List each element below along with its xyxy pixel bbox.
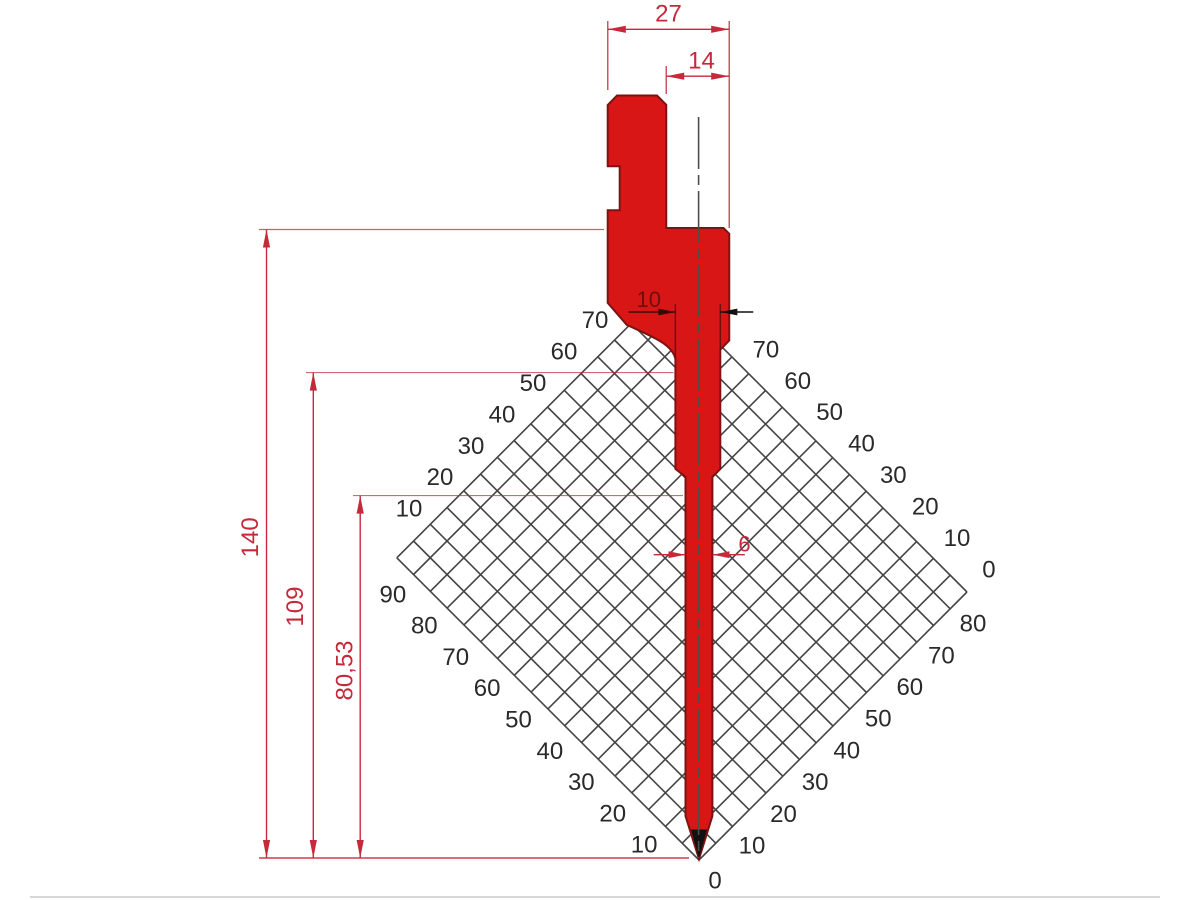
svg-text:10: 10 — [944, 525, 971, 552]
svg-text:0: 0 — [982, 556, 995, 583]
svg-text:40: 40 — [537, 738, 564, 765]
svg-text:0: 0 — [708, 868, 721, 895]
svg-text:30: 30 — [880, 462, 907, 489]
svg-text:30: 30 — [458, 433, 485, 460]
svg-text:50: 50 — [505, 707, 532, 734]
svg-text:10: 10 — [637, 287, 661, 312]
svg-text:10: 10 — [396, 496, 423, 523]
svg-text:70: 70 — [753, 336, 780, 363]
svg-text:70: 70 — [928, 642, 955, 669]
svg-text:27: 27 — [655, 1, 682, 28]
svg-text:80: 80 — [960, 611, 987, 638]
svg-text:20: 20 — [912, 494, 939, 521]
svg-text:60: 60 — [896, 674, 923, 701]
svg-text:70: 70 — [582, 307, 609, 334]
svg-text:140: 140 — [237, 517, 264, 557]
svg-text:90: 90 — [380, 581, 407, 608]
svg-text:80: 80 — [411, 613, 438, 640]
svg-text:6: 6 — [738, 532, 750, 557]
svg-text:30: 30 — [802, 769, 829, 796]
svg-text:20: 20 — [599, 800, 626, 827]
svg-text:40: 40 — [848, 431, 875, 458]
svg-text:50: 50 — [816, 399, 843, 426]
svg-text:30: 30 — [568, 769, 595, 796]
svg-text:60: 60 — [784, 368, 811, 395]
svg-text:10: 10 — [739, 833, 766, 860]
svg-text:40: 40 — [833, 737, 860, 764]
svg-text:109: 109 — [282, 587, 309, 627]
svg-text:20: 20 — [427, 464, 454, 491]
svg-text:50: 50 — [520, 370, 547, 397]
svg-text:10: 10 — [631, 832, 658, 859]
svg-text:60: 60 — [474, 675, 501, 702]
svg-text:70: 70 — [442, 644, 469, 671]
svg-text:50: 50 — [865, 706, 892, 733]
svg-text:14: 14 — [688, 48, 715, 75]
svg-text:80,53: 80,53 — [332, 640, 359, 700]
svg-text:20: 20 — [770, 801, 797, 828]
svg-text:40: 40 — [489, 401, 516, 428]
svg-text:60: 60 — [551, 339, 578, 366]
